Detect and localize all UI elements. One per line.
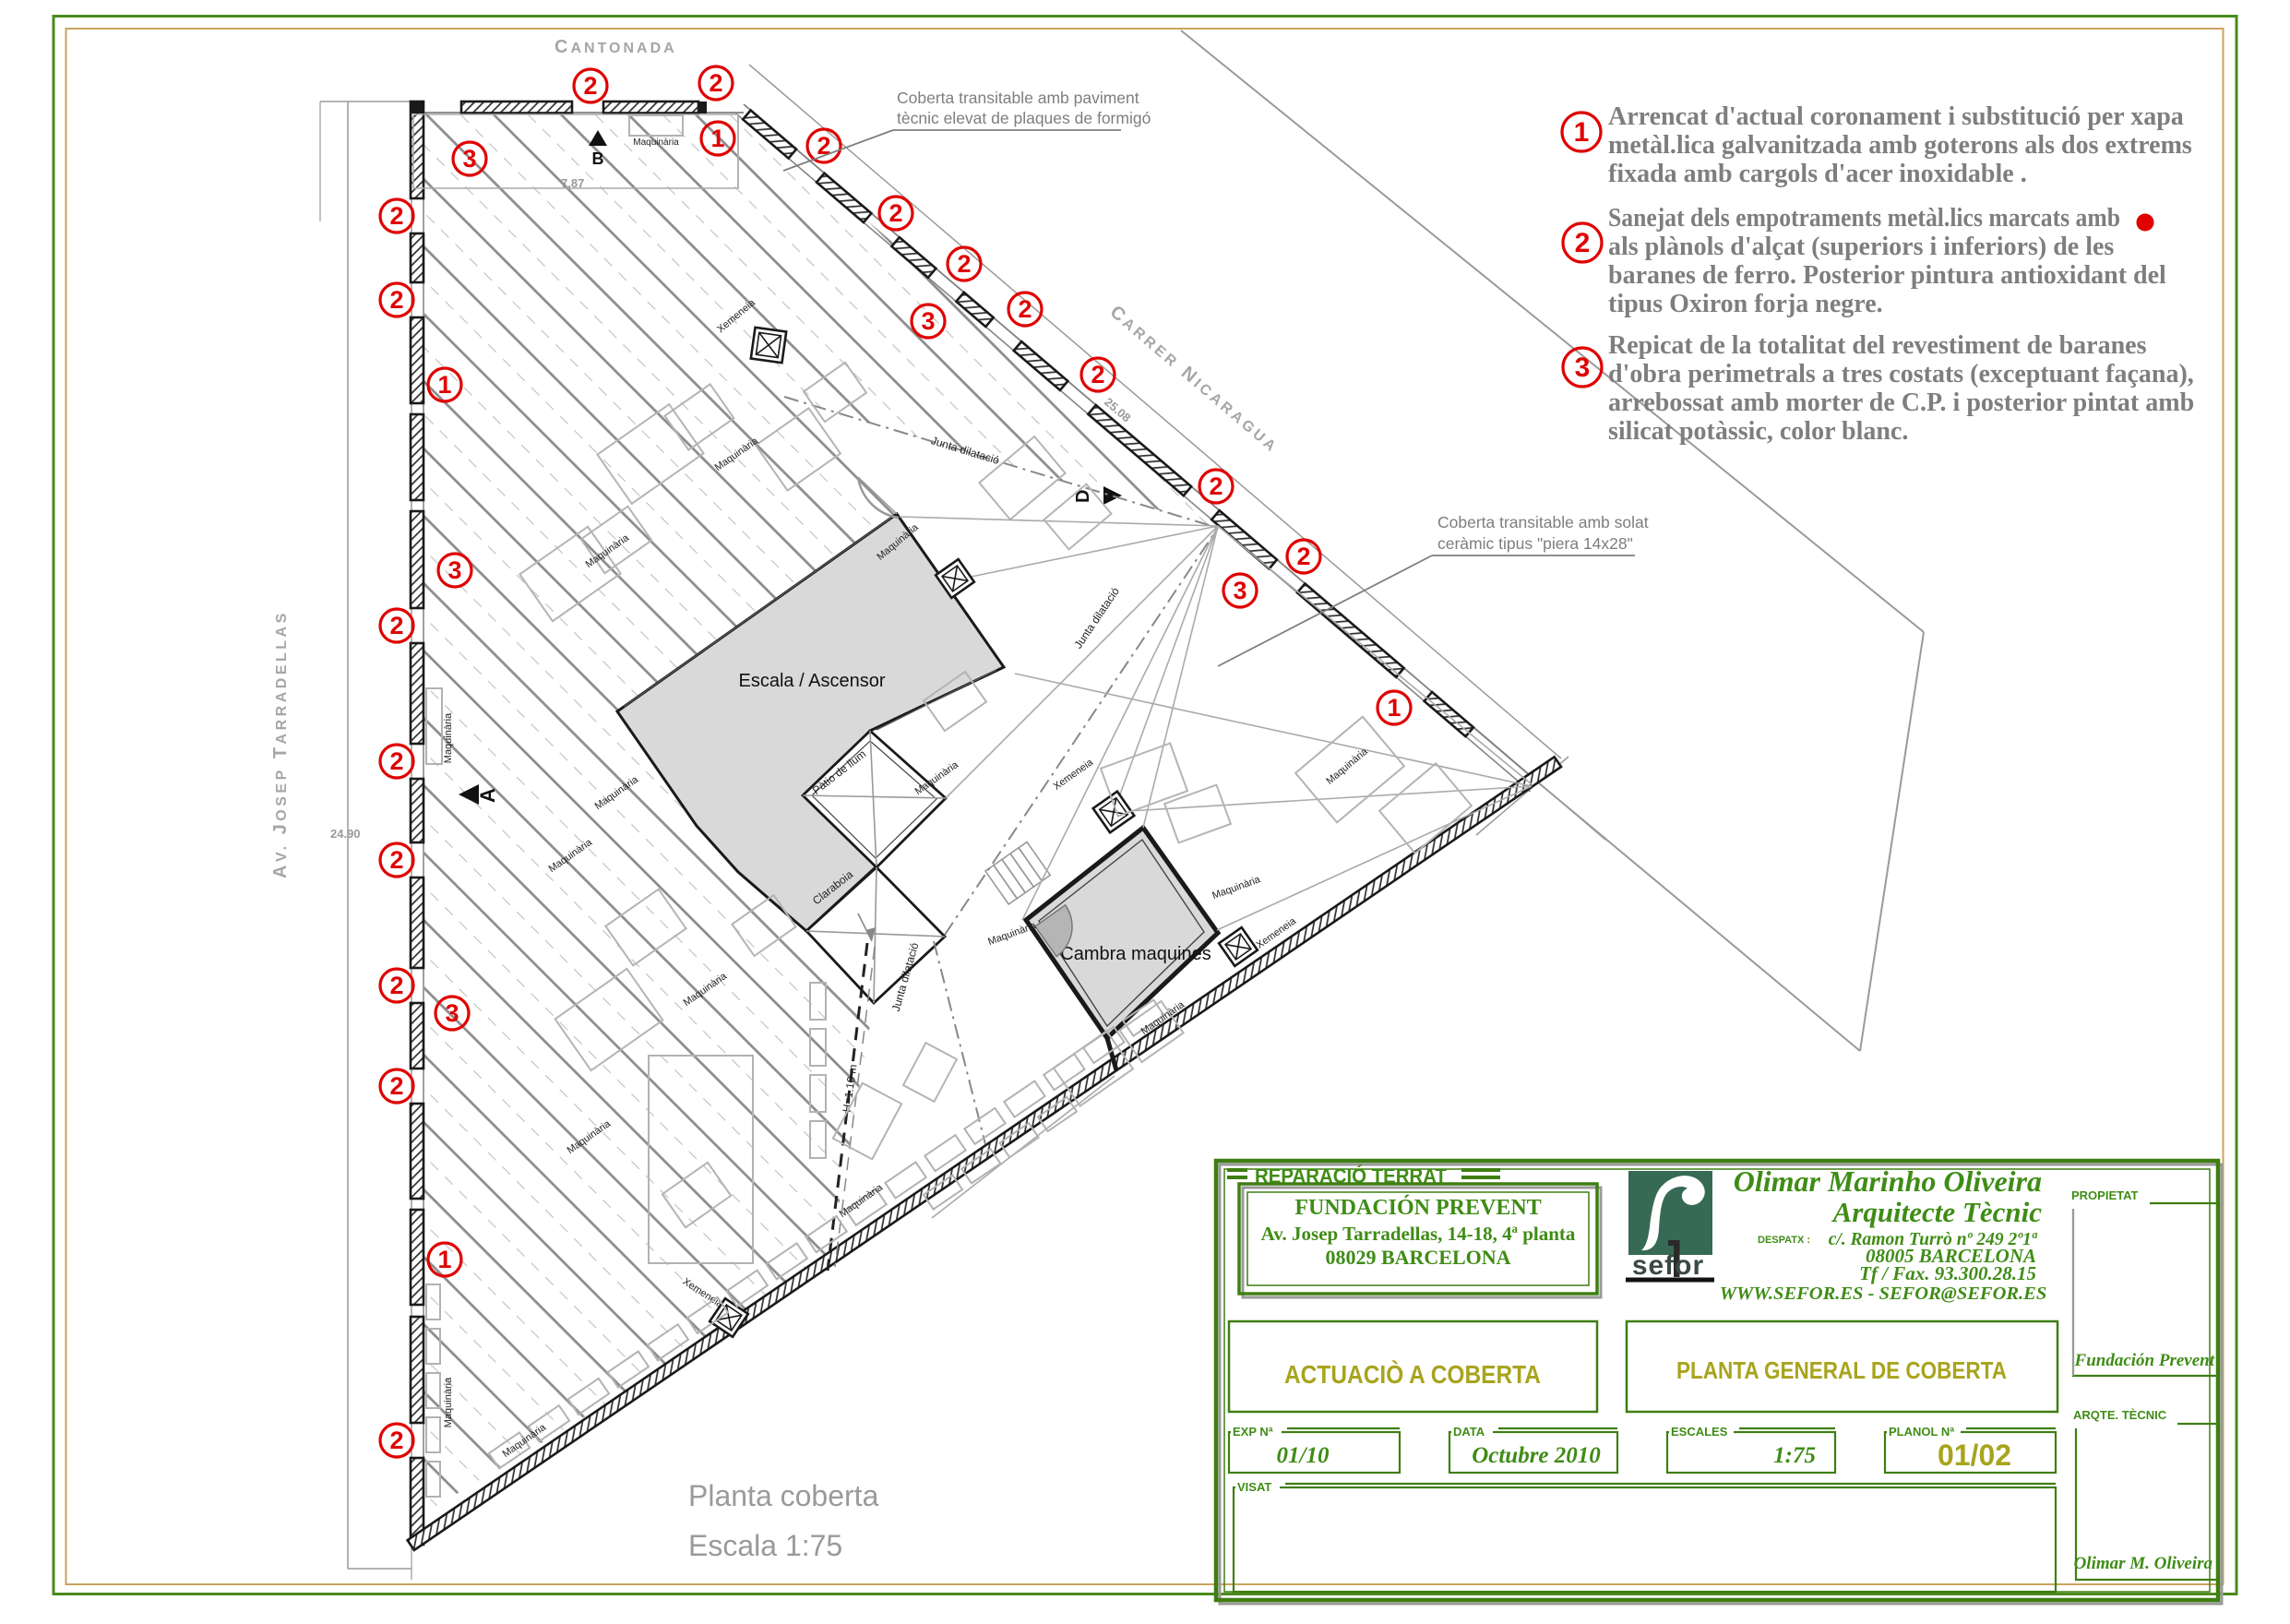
svg-text:Arquitecte Tècnic: Arquitecte Tècnic xyxy=(1831,1196,2043,1228)
svg-text:3: 3 xyxy=(462,145,476,173)
svg-text:Escala / Ascensor: Escala / Ascensor xyxy=(739,671,886,691)
svg-text:tipus Oxiron forja negre.: tipus Oxiron forja negre. xyxy=(1608,290,1883,318)
svg-text:2: 2 xyxy=(389,972,403,999)
svg-text:2: 2 xyxy=(389,747,403,775)
svg-text:Fundación Prevent: Fundación Prevent xyxy=(2074,1351,2215,1370)
svg-text:Planta coberta: Planta coberta xyxy=(688,1479,879,1512)
svg-text:3: 3 xyxy=(445,999,459,1027)
svg-text:1: 1 xyxy=(437,371,451,399)
svg-text:01/02: 01/02 xyxy=(1938,1439,2011,1472)
svg-text:VISAT: VISAT xyxy=(1237,1480,1271,1494)
svg-text:2: 2 xyxy=(583,72,597,100)
svg-text:2: 2 xyxy=(1296,543,1310,570)
svg-text:fixada amb cargols d'acer ino: fixada amb cargols d'acer inoxidable . xyxy=(1608,160,2027,188)
svg-text:3: 3 xyxy=(447,556,461,584)
svg-text:baranes de ferro. Posterior pi: baranes de ferro. Posterior pintura anti… xyxy=(1608,261,2166,290)
svg-text:B: B xyxy=(592,149,604,168)
svg-text:Escala 1:75: Escala 1:75 xyxy=(688,1529,842,1562)
svg-text:PLANOL Nª: PLANOL Nª xyxy=(1889,1425,1954,1439)
svg-text:1:75: 1:75 xyxy=(1773,1443,1816,1468)
svg-text:Octubre 2010: Octubre 2010 xyxy=(1472,1443,1601,1468)
svg-text:2: 2 xyxy=(1091,361,1104,388)
svg-text:ceràmic tipus "piera 14x28": ceràmic tipus "piera 14x28" xyxy=(1437,534,1633,553)
svg-text:Av. Josep Tarradellas, 14-18,: Av. Josep Tarradellas, 14-18, 4ª planta xyxy=(1261,1223,1576,1245)
svg-text:08029 BARCELONA: 08029 BARCELONA xyxy=(1325,1246,1510,1269)
svg-text:Maquinària: Maquinària xyxy=(633,137,679,148)
svg-text:2: 2 xyxy=(1209,472,1223,500)
svg-text:WWW.SEFOR.ES - SEFOR@SEFOR: WWW.SEFOR.ES - SEFOR@SEFOR.ES xyxy=(1720,1284,2047,1304)
svg-text:3: 3 xyxy=(1575,352,1591,383)
svg-text:1: 1 xyxy=(1387,694,1401,722)
svg-text:PROPIETAT: PROPIETAT xyxy=(2071,1188,2139,1202)
svg-text:2: 2 xyxy=(389,846,403,874)
svg-text:metàl.lica galvanitzada amb go: metàl.lica galvanitzada amb goterons als… xyxy=(1608,131,2192,160)
svg-text:Coberta transitable amb solat: Coberta transitable amb solat xyxy=(1437,513,1649,531)
svg-text:Coberta transitable amb pavime: Coberta transitable amb paviment xyxy=(897,89,1139,107)
svg-text:silicat potàssic, color blanc.: silicat potàssic, color blanc. xyxy=(1608,417,1908,446)
svg-text:2: 2 xyxy=(389,612,403,639)
svg-text:tècnic elevat de plaques de fo: tècnic elevat de plaques de formigó xyxy=(897,109,1151,127)
svg-text:PLANTA GENERAL DE COBERTA: PLANTA GENERAL DE COBERTA xyxy=(1676,1356,2007,1384)
svg-text:Cambra maquines: Cambra maquines xyxy=(1060,944,1211,964)
svg-text:ESCALES: ESCALES xyxy=(1671,1425,1728,1439)
svg-text:24.90: 24.90 xyxy=(330,827,361,841)
svg-text:1: 1 xyxy=(437,1246,451,1273)
svg-text:01/10: 01/10 xyxy=(1277,1443,1330,1468)
svg-text:sefor: sefor xyxy=(1632,1250,1704,1281)
svg-text:2: 2 xyxy=(389,202,403,230)
svg-text:als plànols d'alçat (superiors: als plànols d'alçat (superiors i inferio… xyxy=(1608,233,2114,261)
svg-text:Maquinària: Maquinària xyxy=(443,1377,454,1427)
svg-text:2: 2 xyxy=(389,1072,403,1100)
svg-text:AV. JOSEP TARRADELLAS: AV. JOSEP TARRADELLAS xyxy=(270,610,291,878)
svg-text:Sanejat dels empotraments metà: Sanejat dels empotraments metàl.lics mar… xyxy=(1608,204,2120,233)
svg-text:Tf / Fax. 93.300.28.15: Tf / Fax. 93.300.28.15 xyxy=(1859,1262,2036,1284)
svg-text:Arrencat d'actual coronament i: Arrencat d'actual coronament i substituc… xyxy=(1608,102,2184,131)
svg-text:d'obra perimetrals a tres cost: d'obra perimetrals a tres costats (excep… xyxy=(1608,360,2194,388)
svg-text:ACTUACIÒ A COBERTA: ACTUACIÒ A COBERTA xyxy=(1284,1360,1541,1389)
svg-text:FUNDACIÓN PREVENT: FUNDACIÓN PREVENT xyxy=(1294,1195,1541,1220)
svg-text:2: 2 xyxy=(1018,295,1032,323)
svg-text:Maquinària: Maquinària xyxy=(443,712,454,763)
svg-text:2: 2 xyxy=(889,199,902,227)
svg-text:2: 2 xyxy=(709,69,722,97)
svg-text:1: 1 xyxy=(1574,117,1590,148)
svg-text:2: 2 xyxy=(389,1427,403,1454)
svg-text:A: A xyxy=(476,788,499,803)
svg-text:DATA: DATA xyxy=(1453,1425,1485,1439)
svg-text:3: 3 xyxy=(1233,577,1246,604)
svg-text:2: 2 xyxy=(957,250,971,278)
svg-text:3: 3 xyxy=(921,307,935,335)
svg-text:EXP Nª: EXP Nª xyxy=(1233,1425,1273,1439)
svg-text:2: 2 xyxy=(1575,228,1591,258)
svg-text:Olimar M. Oliveira: Olimar M. Oliveira xyxy=(2074,1554,2213,1573)
svg-text:2: 2 xyxy=(389,286,403,314)
svg-text:DESPATX :: DESPATX : xyxy=(1758,1235,1810,1246)
svg-text:CANTONADA: CANTONADA xyxy=(555,37,677,57)
svg-text:Olimar Marinho Oliveira: Olimar Marinho Oliveira xyxy=(1734,1164,2042,1198)
svg-text:ARQTE. TÈCNIC: ARQTE. TÈCNIC xyxy=(2073,1408,2167,1422)
svg-text:arrebossat amb morter de C.P.: arrebossat amb morter de C.P. i posterio… xyxy=(1608,388,2194,417)
svg-text:1: 1 xyxy=(710,125,724,152)
svg-text:Repicat de la totalitat del re: Repicat de la totalitat del revestiment … xyxy=(1608,331,2147,360)
